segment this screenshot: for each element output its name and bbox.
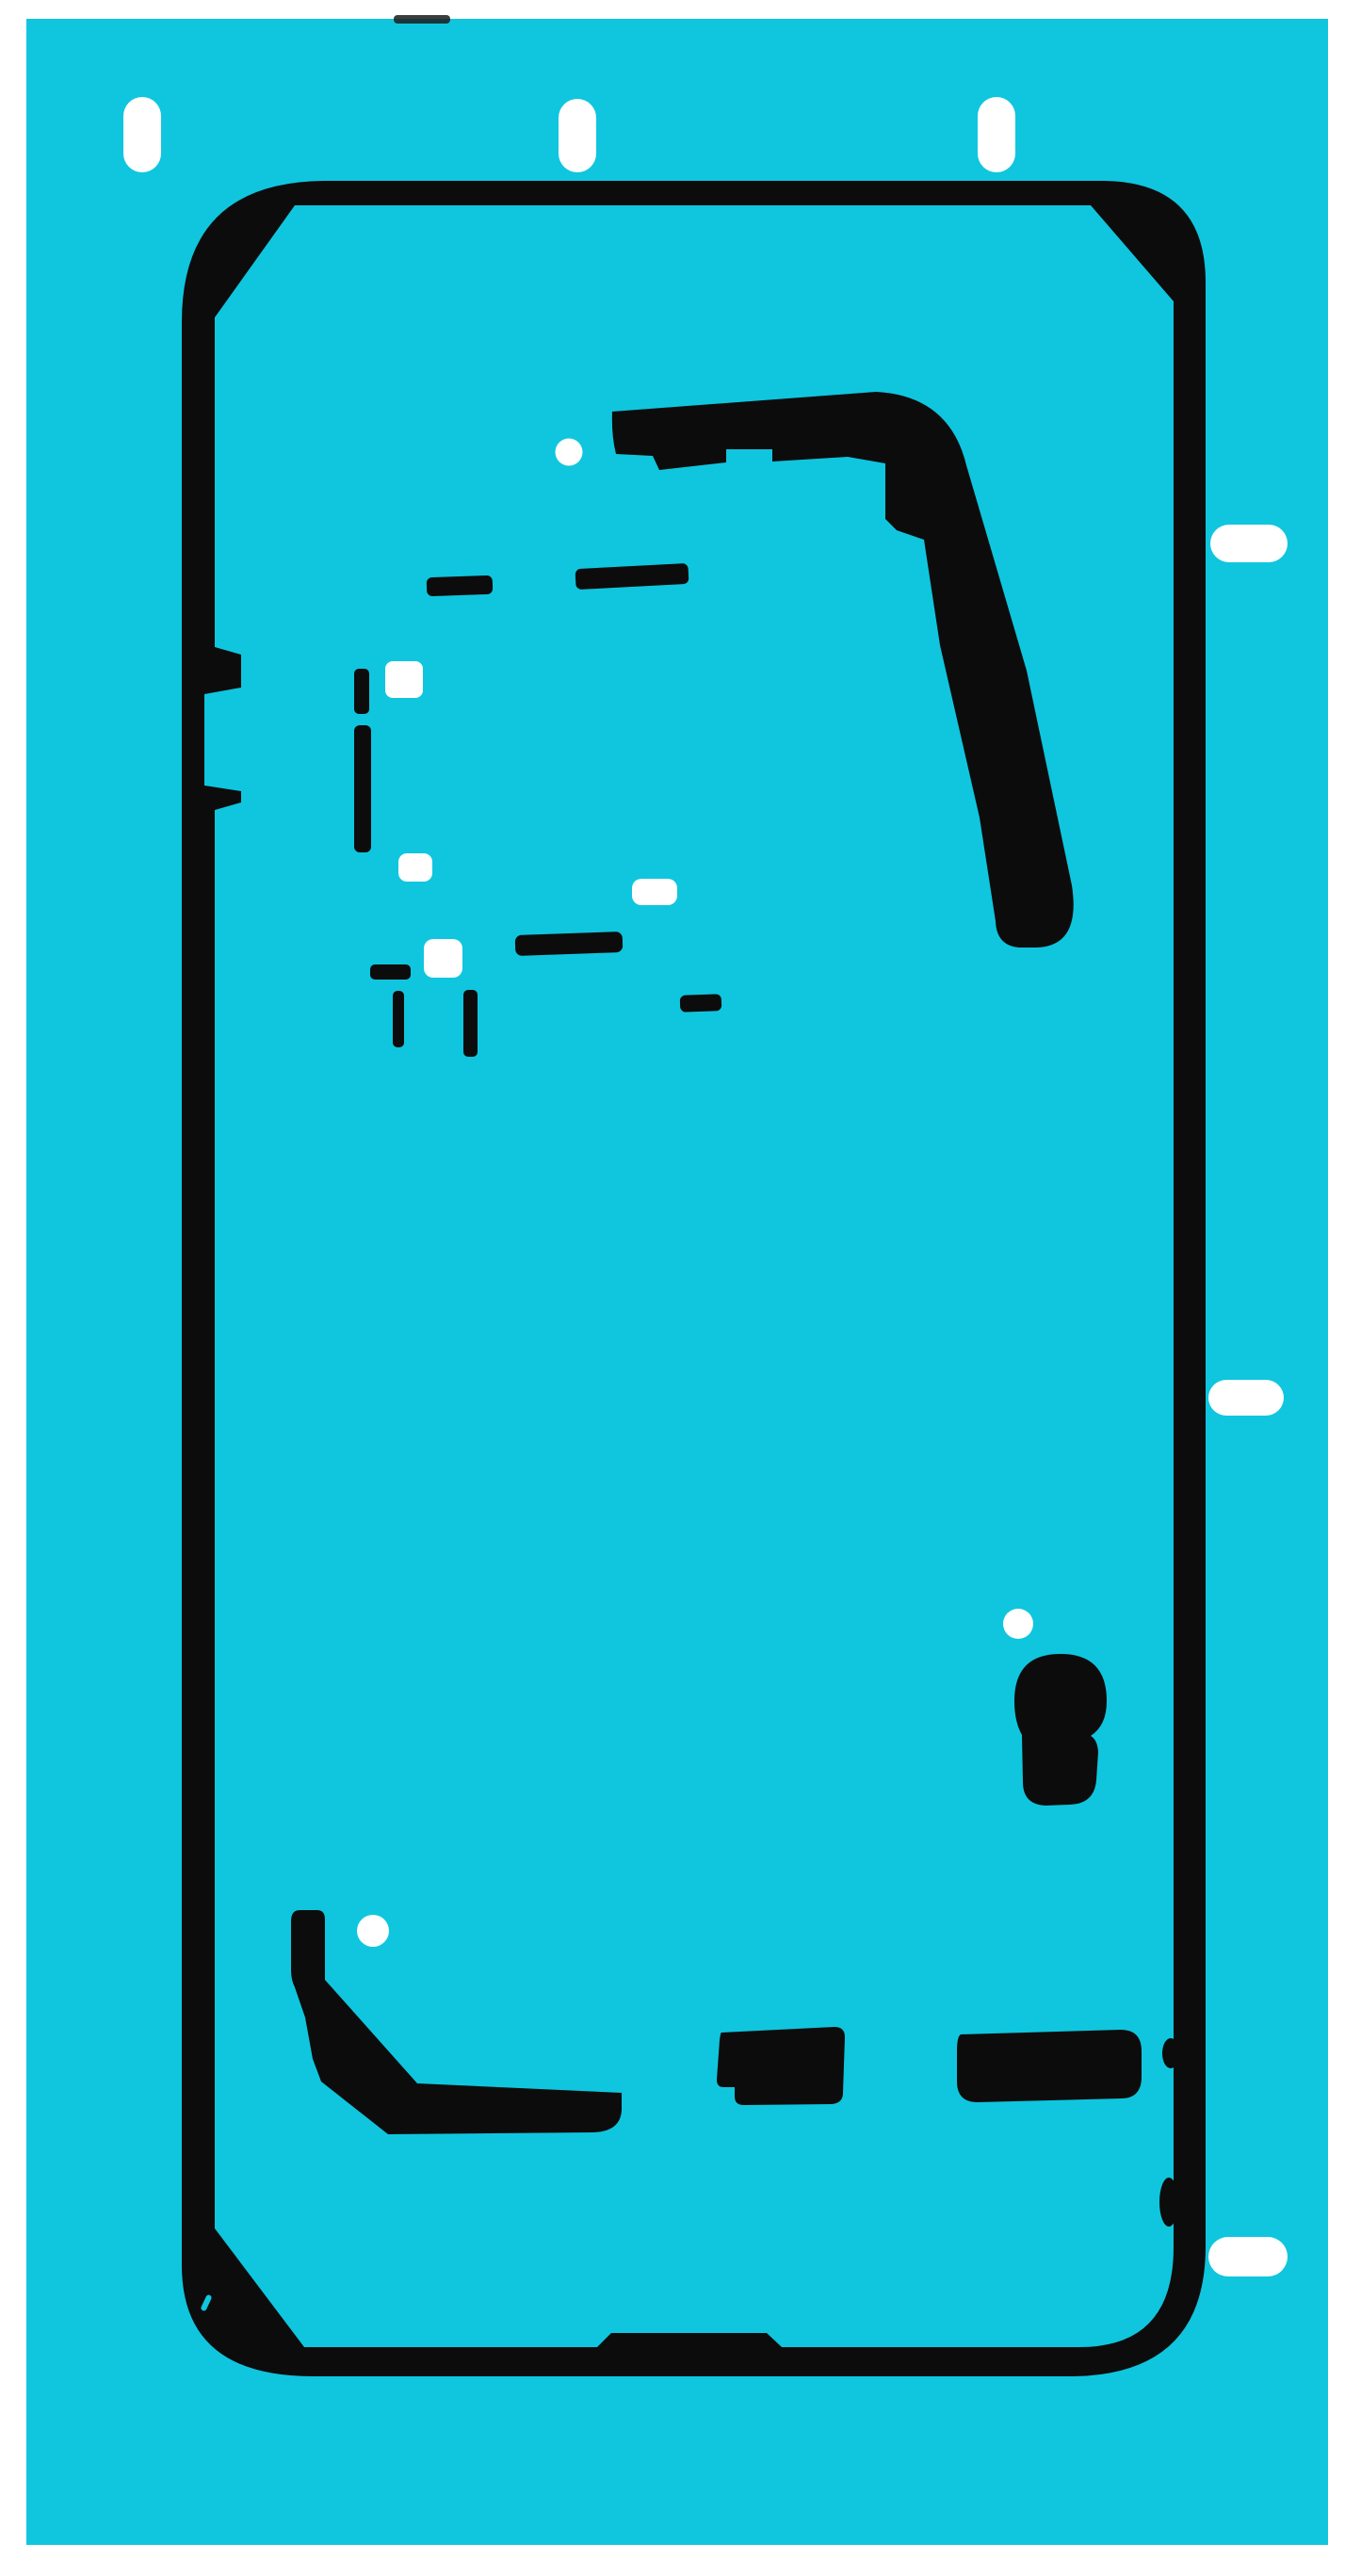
fingerprint-tab-hole — [1003, 1609, 1033, 1639]
top-edge-mark — [394, 15, 450, 24]
bottom-strip-segment-right — [957, 2030, 1142, 2102]
liner-cutout-2 — [398, 853, 432, 882]
liner-dash-right — [680, 994, 722, 1013]
adhesive-sheet-drawing — [0, 0, 1361, 2576]
liner-dash-vert-1 — [393, 991, 404, 1047]
top-slot-middle — [559, 99, 596, 172]
liner-dash-vert-2 — [463, 990, 478, 1057]
liner-dash-left-2 — [354, 725, 371, 852]
top-slot-left — [123, 97, 161, 172]
liner-cutout-4 — [632, 879, 677, 905]
liner-dash-step — [370, 964, 411, 980]
bottom-strip-segment-middle — [717, 2027, 845, 2105]
adhesive-sheet-photo — [0, 0, 1361, 2576]
right-slot-middle — [1208, 1380, 1284, 1416]
liner-sheet — [26, 19, 1328, 2545]
liner-dash-left-1 — [354, 669, 369, 714]
right-border-jog-lower — [1159, 2178, 1178, 2227]
top-right-tab-hole — [556, 439, 583, 466]
liner-cutout-3 — [424, 939, 462, 978]
liner-dash-middle — [515, 932, 624, 956]
liner-dash-top-1 — [427, 575, 494, 596]
right-slot-upper — [1210, 525, 1288, 562]
top-slot-right — [978, 97, 1015, 172]
liner-cutout-1 — [385, 661, 423, 698]
right-border-jog-upper — [1162, 2038, 1179, 2068]
fingerprint-adhesive-blob — [1014, 1654, 1107, 1806]
right-slot-lower — [1208, 2237, 1288, 2276]
bottom-left-tab-hole — [357, 1915, 389, 1947]
